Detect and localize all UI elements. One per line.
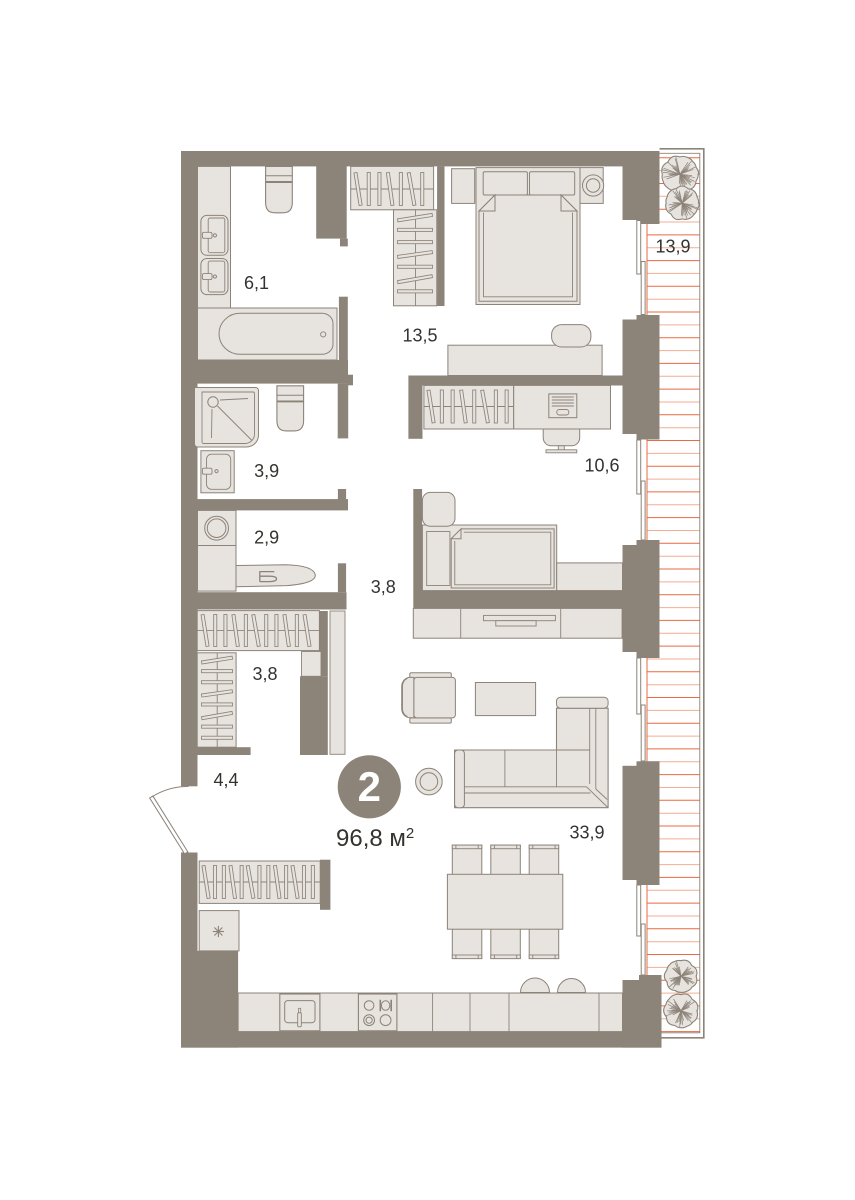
svg-text:13,5: 13,5 (402, 326, 437, 346)
svg-text:2,9: 2,9 (254, 528, 279, 548)
svg-text:10,6: 10,6 (584, 456, 619, 476)
svg-text:3,8: 3,8 (252, 664, 277, 684)
svg-text:13,9: 13,9 (655, 237, 690, 257)
svg-text:33,9: 33,9 (569, 823, 604, 843)
svg-text:4,4: 4,4 (213, 770, 238, 790)
svg-text:2: 2 (358, 763, 381, 810)
svg-text:3,9: 3,9 (254, 461, 279, 481)
svg-text:3,8: 3,8 (371, 577, 396, 597)
svg-text:96,8 м2: 96,8 м2 (336, 825, 414, 852)
svg-text:6,1: 6,1 (244, 273, 269, 293)
